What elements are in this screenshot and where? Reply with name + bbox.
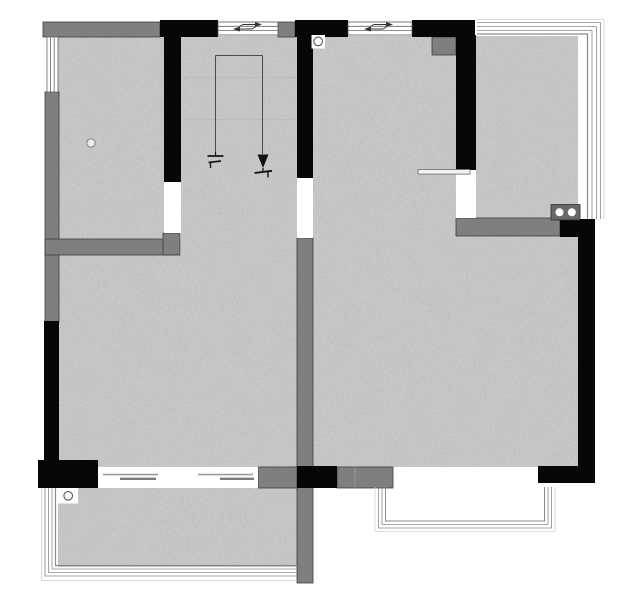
window-left xyxy=(47,37,58,92)
window-top-2 xyxy=(348,22,412,35)
wall-top-left xyxy=(43,22,160,37)
drain-circle-icon xyxy=(64,492,73,501)
wall-right xyxy=(578,237,595,483)
floor-plan-canvas xyxy=(0,0,640,597)
drain-box-balcony xyxy=(58,488,78,504)
floor-plan-drawing xyxy=(0,0,640,597)
drain-circle-icon xyxy=(314,37,323,46)
cooktop xyxy=(551,205,580,221)
wall-top-3 xyxy=(412,20,475,37)
wall-bottom-middle xyxy=(297,466,337,488)
kitchen-column xyxy=(432,37,456,55)
bay-window-outline xyxy=(375,487,555,532)
drain-box-top xyxy=(312,35,326,49)
wall-kitchen-horizontal xyxy=(456,218,560,236)
wall-top-2 xyxy=(295,20,348,37)
wall-top-pier xyxy=(278,22,295,37)
bathroom-door-opening xyxy=(164,182,181,233)
wall-corner-bottom-left xyxy=(38,460,98,488)
balcony-sliding-opening xyxy=(98,467,258,488)
kitchen-door-leaf xyxy=(418,170,470,175)
wall-bathroom-right xyxy=(164,20,181,182)
burner-icon xyxy=(556,208,564,216)
wall-bottom-right-pier xyxy=(337,467,393,488)
hall-door-opening xyxy=(297,178,313,238)
wall-kitchen-vertical xyxy=(456,35,476,170)
window-top-1 xyxy=(218,22,278,35)
wall-bath-bottom xyxy=(45,239,180,255)
burner-icon xyxy=(568,208,576,216)
wall-left-lower xyxy=(44,321,59,467)
kitchen-door-opening xyxy=(456,170,476,218)
wall-bath-bottom-step xyxy=(163,233,180,255)
wall-middle-upper xyxy=(297,35,313,178)
wall-bottom-left-pier xyxy=(258,467,297,488)
wall-left-upper xyxy=(45,92,59,322)
wall-corner-kitchen xyxy=(560,219,595,237)
wall-middle-lower xyxy=(297,238,313,583)
bathroom-drain-icon xyxy=(87,139,95,147)
